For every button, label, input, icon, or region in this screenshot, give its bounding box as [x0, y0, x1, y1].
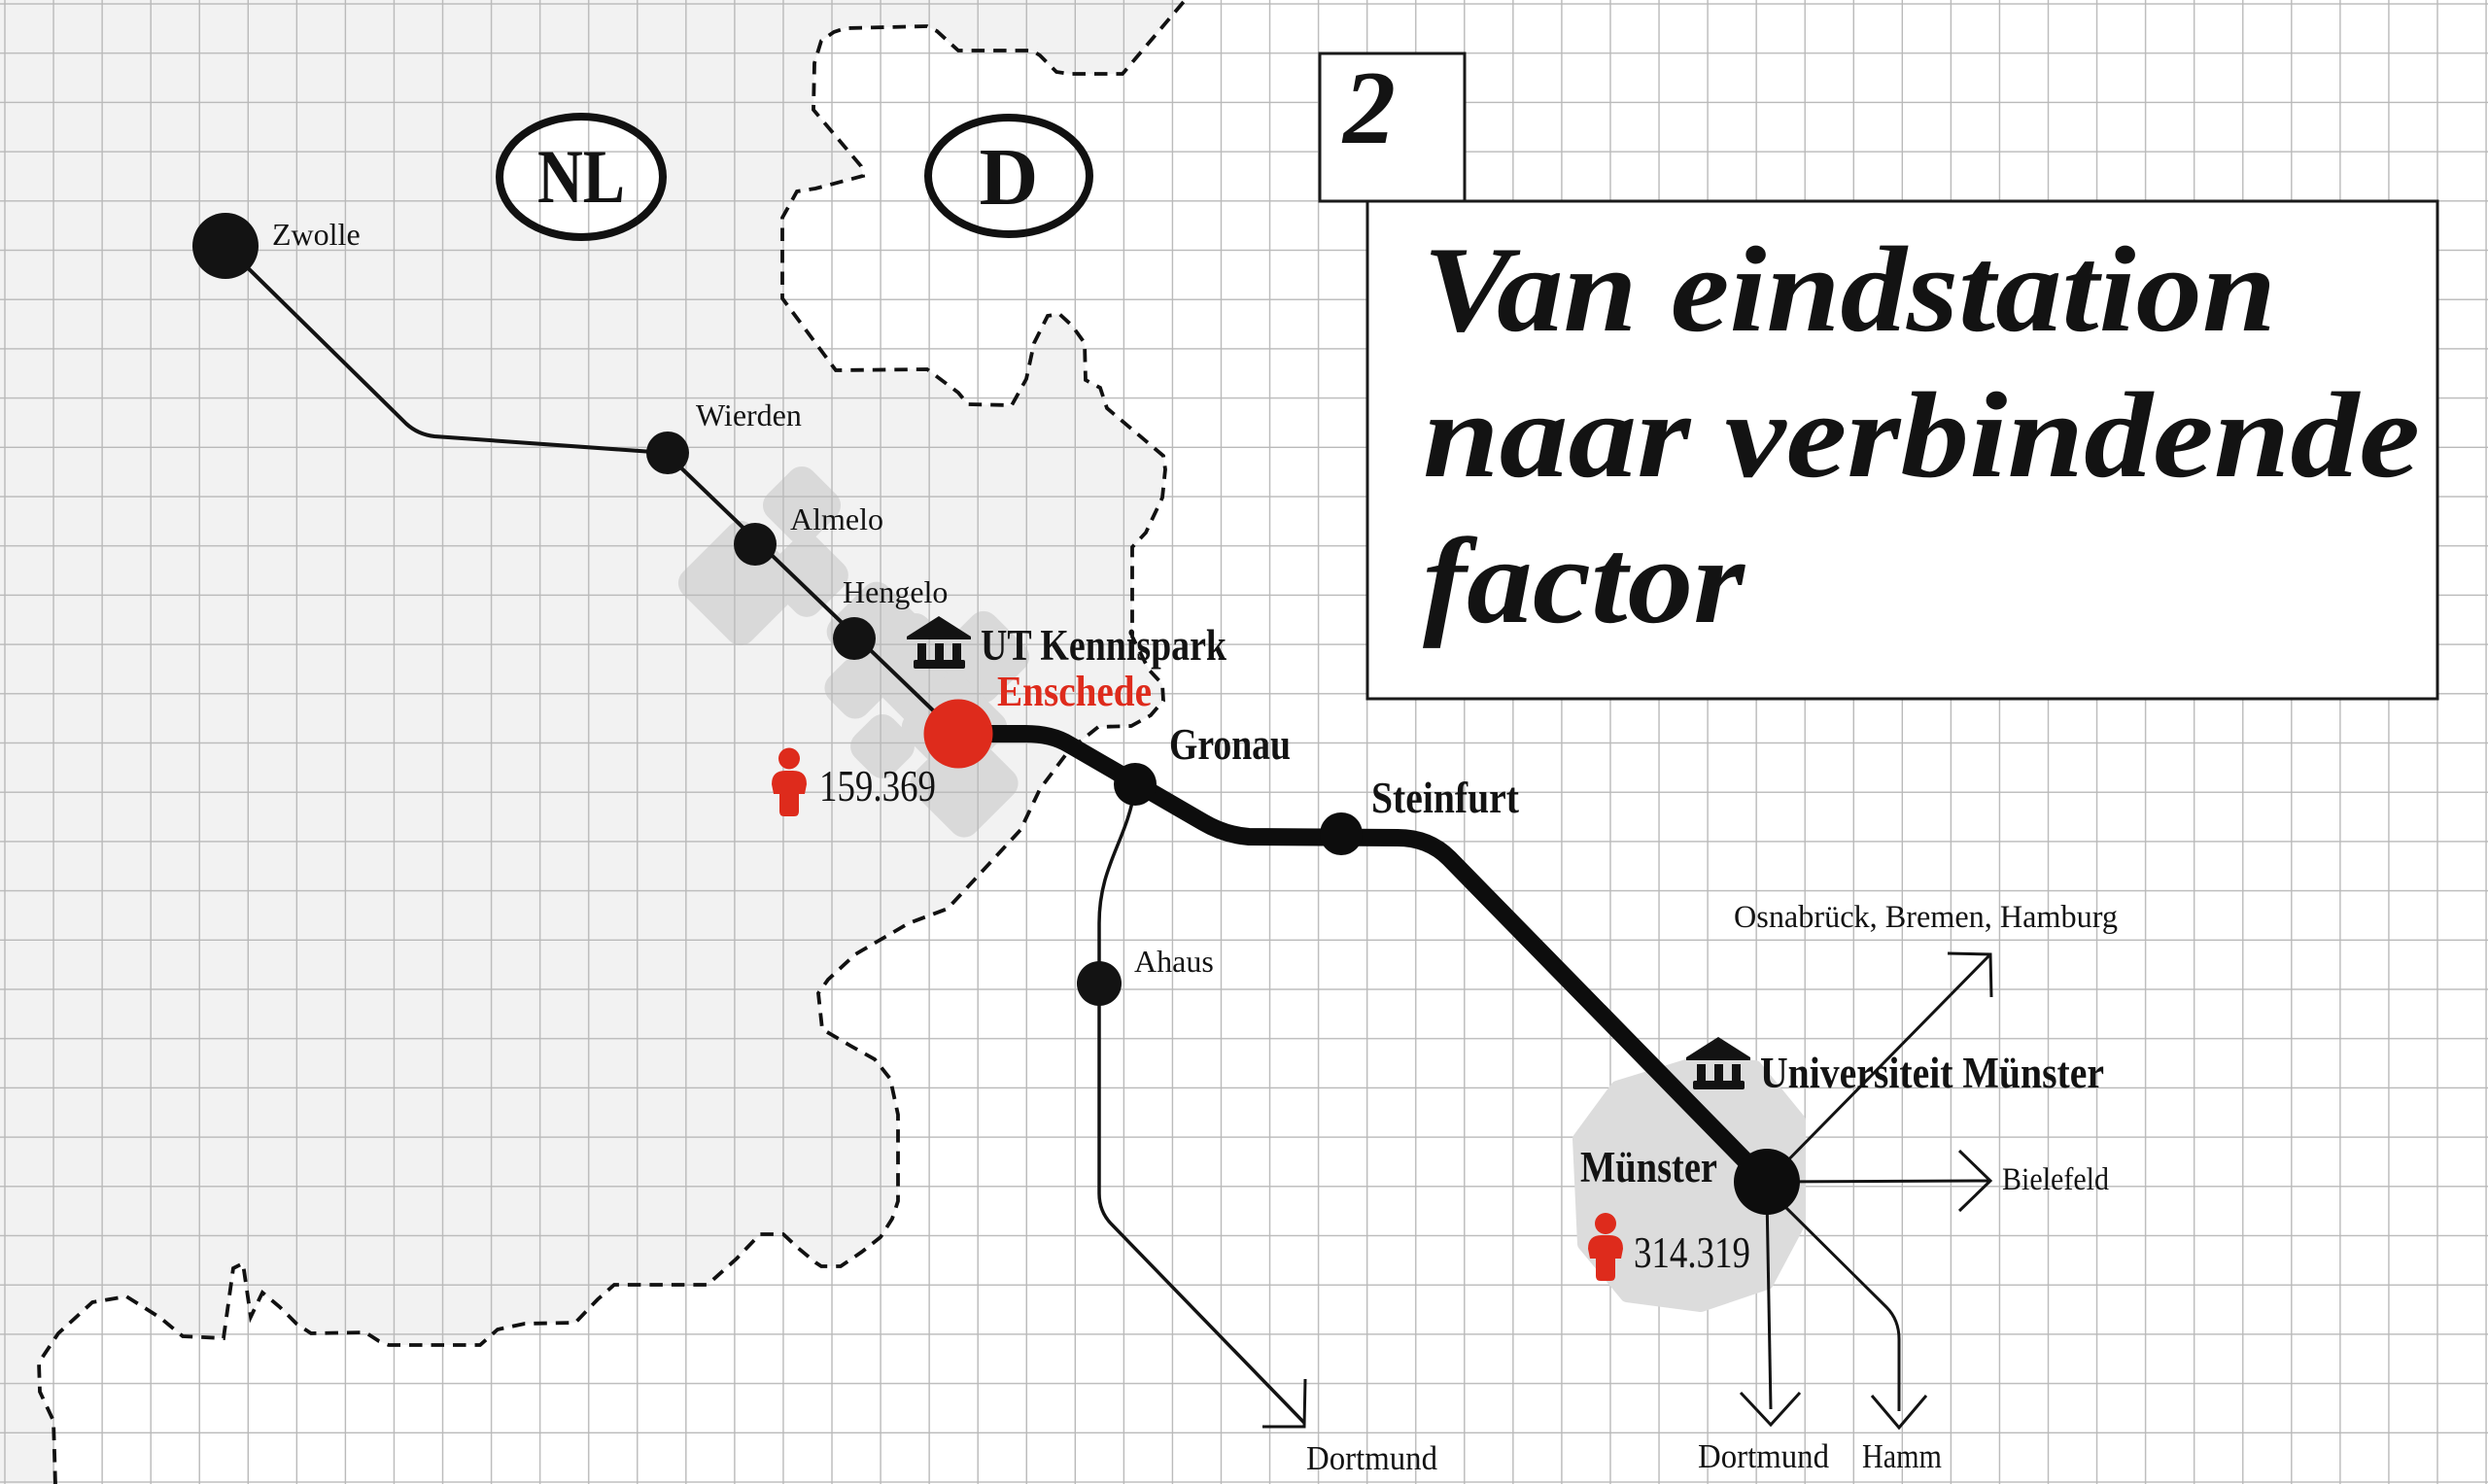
svg-text:factor: factor	[1423, 514, 1745, 649]
svg-text:Gronau: Gronau	[1169, 720, 1291, 769]
svg-text:Almelo: Almelo	[790, 501, 883, 536]
svg-text:UT Kennispark: UT Kennispark	[981, 621, 1227, 670]
svg-text:2: 2	[1341, 51, 1396, 166]
svg-text:Dortmund: Dortmund	[1698, 1437, 1829, 1475]
svg-text:D: D	[980, 132, 1039, 223]
svg-text:Dortmund: Dortmund	[1306, 1439, 1437, 1477]
svg-text:Hengelo: Hengelo	[843, 574, 948, 609]
svg-text:Hamm: Hamm	[1862, 1437, 1942, 1475]
svg-text:159.369: 159.369	[819, 762, 936, 811]
svg-text:Ahaus: Ahaus	[1134, 944, 1214, 979]
svg-text:Osnabrück, Bremen, Hamburg: Osnabrück, Bremen, Hamburg	[1734, 900, 2118, 935]
svg-text:Van eindstation: Van eindstation	[1423, 223, 2276, 358]
svg-text:314.319: 314.319	[1634, 1228, 1750, 1277]
svg-text:Münster: Münster	[1580, 1143, 1717, 1191]
svg-text:Wierden: Wierden	[696, 397, 802, 432]
svg-text:Enschede: Enschede	[997, 668, 1152, 715]
svg-text:naar verbindende: naar verbindende	[1423, 368, 2420, 503]
svg-text:Zwolle: Zwolle	[272, 217, 361, 252]
svg-text:NL: NL	[537, 134, 625, 219]
svg-text:Bielefeld: Bielefeld	[2002, 1162, 2109, 1197]
svg-text:Universiteit Münster: Universiteit Münster	[1760, 1049, 2104, 1097]
svg-text:Steinfurt: Steinfurt	[1371, 774, 1519, 822]
